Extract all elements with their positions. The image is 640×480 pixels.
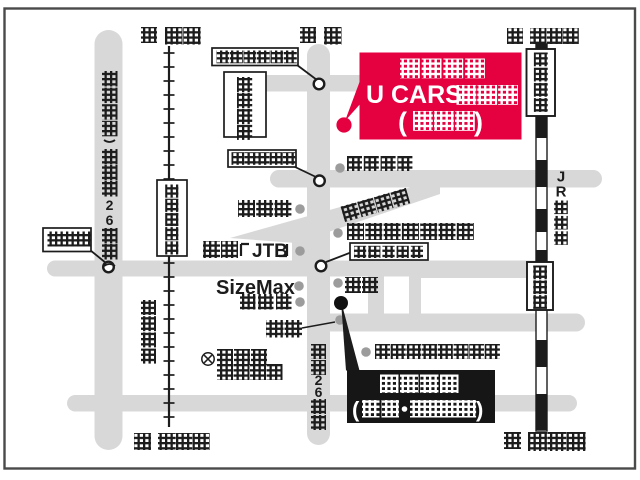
svg-text:6: 6	[106, 212, 114, 228]
svg-text:(: (	[398, 107, 407, 137]
svg-text:JTB: JTB	[252, 241, 288, 262]
svg-text:): )	[476, 397, 483, 422]
svg-text:2: 2	[106, 197, 114, 213]
svg-text:6: 6	[315, 384, 323, 400]
svg-text:U CARS: U CARS	[366, 81, 462, 109]
svg-text:(: (	[352, 397, 360, 422]
svg-text:R: R	[556, 184, 567, 201]
svg-text:): )	[474, 107, 483, 137]
